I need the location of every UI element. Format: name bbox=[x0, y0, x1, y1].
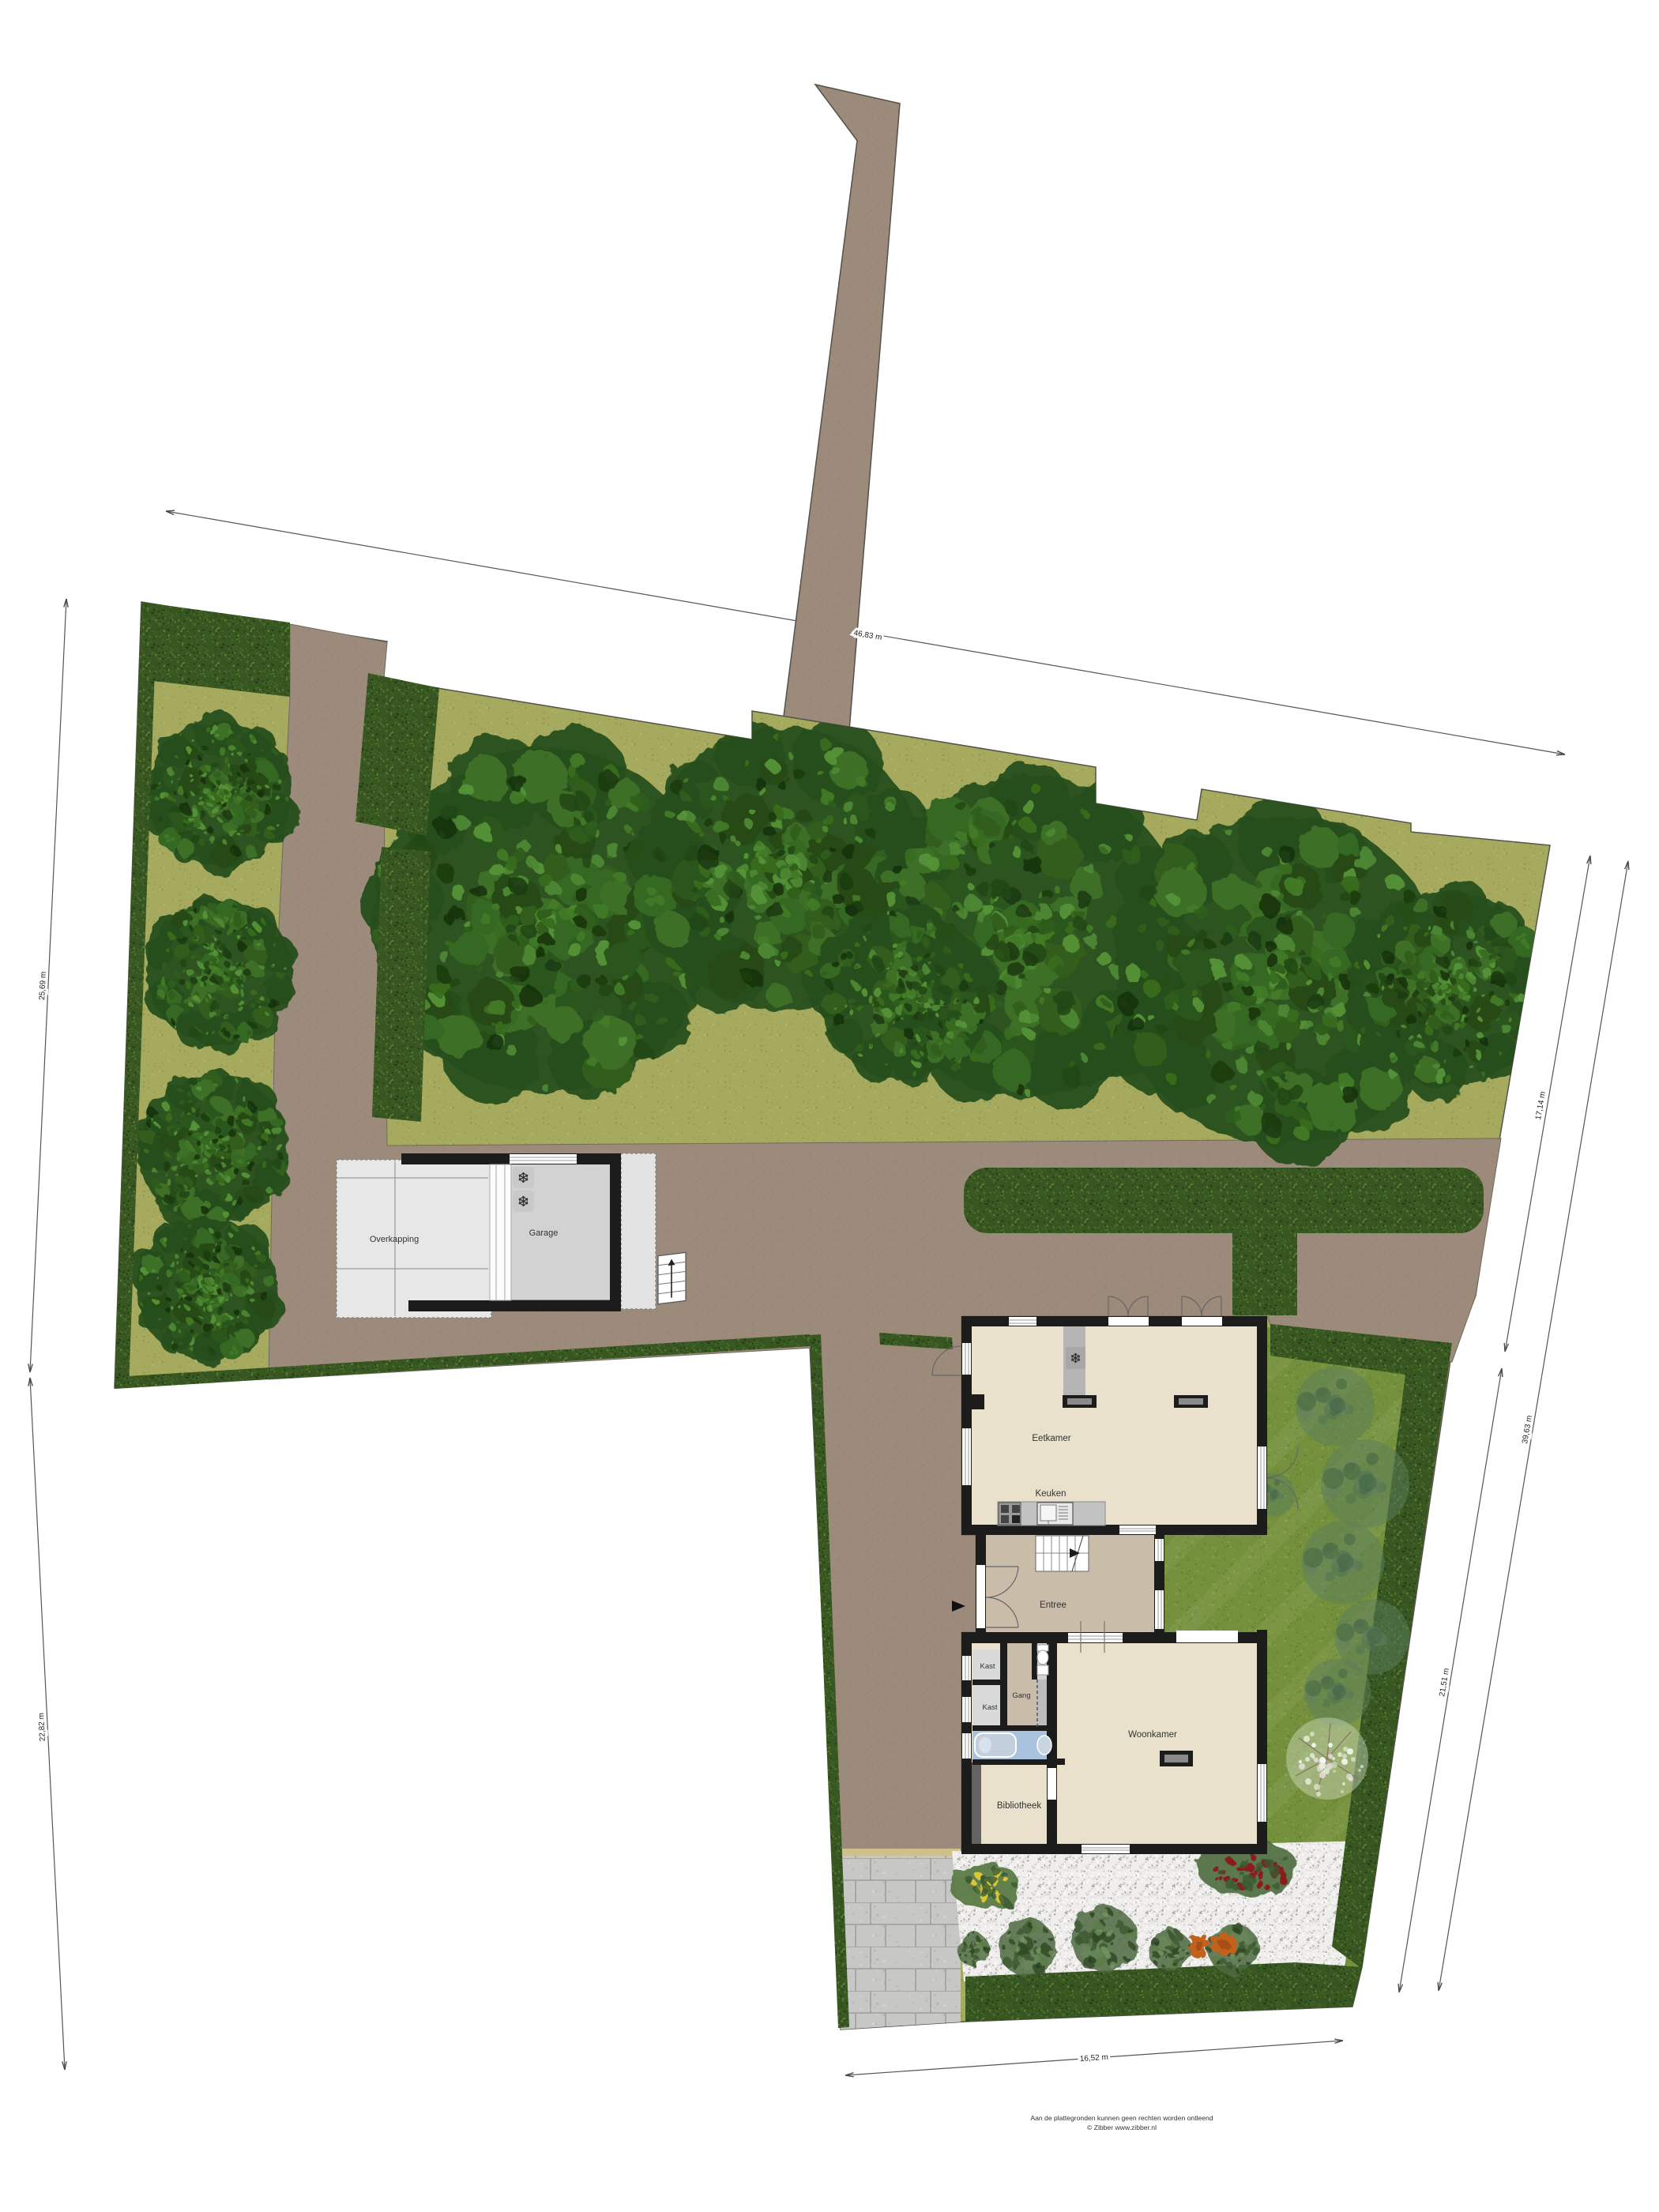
svg-text:© Zibber www.zibber.nl: © Zibber www.zibber.nl bbox=[1087, 2124, 1157, 2131]
svg-text:Garage: Garage bbox=[529, 1228, 559, 1238]
svg-text:22,82 m: 22,82 m bbox=[37, 1713, 47, 1742]
svg-text:Keuken: Keuken bbox=[1035, 1489, 1066, 1499]
svg-text:Woonkamer: Woonkamer bbox=[1128, 1730, 1177, 1740]
svg-text:Aan de plattegronden kunnen ge: Aan de plattegronden kunnen geen rechten… bbox=[1030, 2114, 1213, 2122]
svg-text:Kast: Kast bbox=[982, 1703, 997, 1712]
svg-text:Eetkamer: Eetkamer bbox=[1032, 1434, 1070, 1443]
svg-text:Bibliotheek: Bibliotheek bbox=[997, 1801, 1042, 1811]
svg-text:Overkapping: Overkapping bbox=[370, 1235, 419, 1244]
svg-text:Gang: Gang bbox=[1012, 1691, 1030, 1700]
svg-text:25,69 m: 25,69 m bbox=[38, 972, 48, 1001]
svg-text:Entree: Entree bbox=[1040, 1601, 1066, 1610]
svg-text:Kast: Kast bbox=[980, 1662, 995, 1671]
